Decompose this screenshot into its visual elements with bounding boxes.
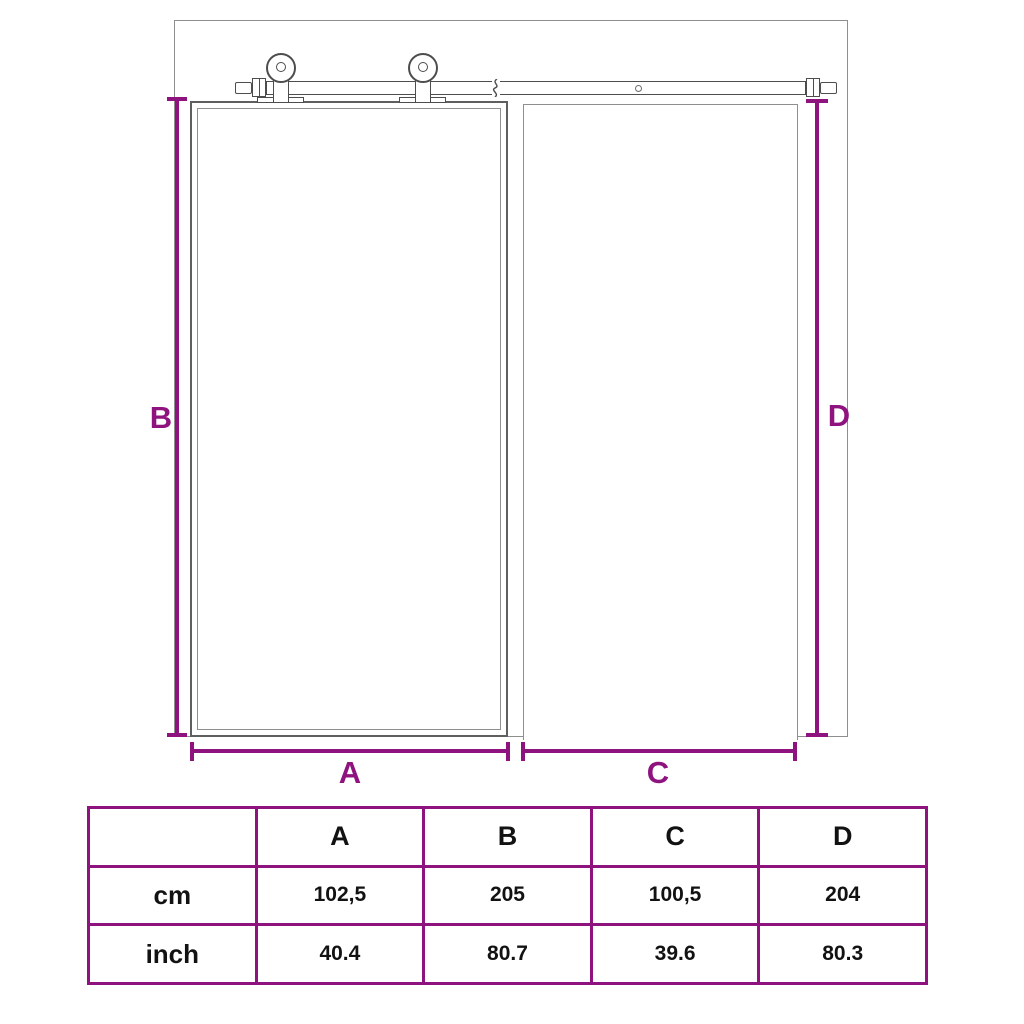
cell-cm-a: 102,5 — [256, 866, 424, 925]
rail-collar-left — [252, 78, 266, 97]
door-panel — [190, 101, 508, 737]
dim-a-tick-right — [506, 742, 510, 761]
dim-c-label: C — [641, 757, 675, 788]
door-panel-inner-frame — [197, 108, 501, 730]
cell-inch-b: 80.7 — [424, 925, 592, 984]
cell-cm-c: 100,5 — [591, 866, 759, 925]
dim-c-line — [521, 749, 797, 753]
size-table-cm-row: cm 102,5 205 100,5 204 — [89, 866, 927, 925]
size-table-header-row: A B C D — [89, 808, 927, 867]
cell-inch-c: 39.6 — [591, 925, 759, 984]
rail-screw-hole-icon — [635, 85, 642, 92]
dim-d-line — [815, 101, 819, 737]
roller-right-hub-icon — [418, 62, 428, 72]
sliding-rail — [266, 81, 806, 95]
header-cell-a: A — [256, 808, 424, 867]
header-cell-b: B — [424, 808, 592, 867]
header-cell-d: D — [759, 808, 927, 867]
dim-a-line — [192, 749, 508, 753]
size-table: A B C D cm 102,5 205 100,5 204 inch 40.4… — [87, 806, 928, 985]
cell-cm-b: 205 — [424, 866, 592, 925]
rail-end-cap-right — [820, 82, 837, 94]
header-cell-empty — [89, 808, 257, 867]
header-cell-c: C — [591, 808, 759, 867]
dim-d-tick-top — [806, 99, 828, 103]
row-label-cm: cm — [89, 866, 257, 925]
dim-b-tick-bottom — [167, 733, 187, 737]
cell-inch-a: 40.4 — [256, 925, 424, 984]
dim-b-tick-top — [167, 97, 187, 101]
dim-c-tick-right — [793, 742, 797, 761]
rail-collar-right — [806, 78, 820, 97]
dim-d-tick-bottom — [806, 733, 828, 737]
cell-inch-d: 80.3 — [759, 925, 927, 984]
size-table-inch-row: inch 40.4 80.7 39.6 80.3 — [89, 925, 927, 984]
rail-break-mark-icon — [488, 79, 504, 97]
doorway-opening — [523, 104, 798, 740]
product-dimension-diagram: B D A C A B C D cm 102,5 205 100,5 204 i… — [0, 0, 1024, 1024]
dim-b-label: B — [144, 402, 178, 433]
dim-d-label: D — [822, 400, 856, 431]
row-label-inch: inch — [89, 925, 257, 984]
roller-left-hub-icon — [276, 62, 286, 72]
cell-cm-d: 204 — [759, 866, 927, 925]
dim-a-tick-left — [190, 742, 194, 761]
dim-c-tick-left — [521, 742, 525, 761]
rail-end-cap-left — [235, 82, 252, 94]
dim-a-label: A — [333, 757, 367, 788]
